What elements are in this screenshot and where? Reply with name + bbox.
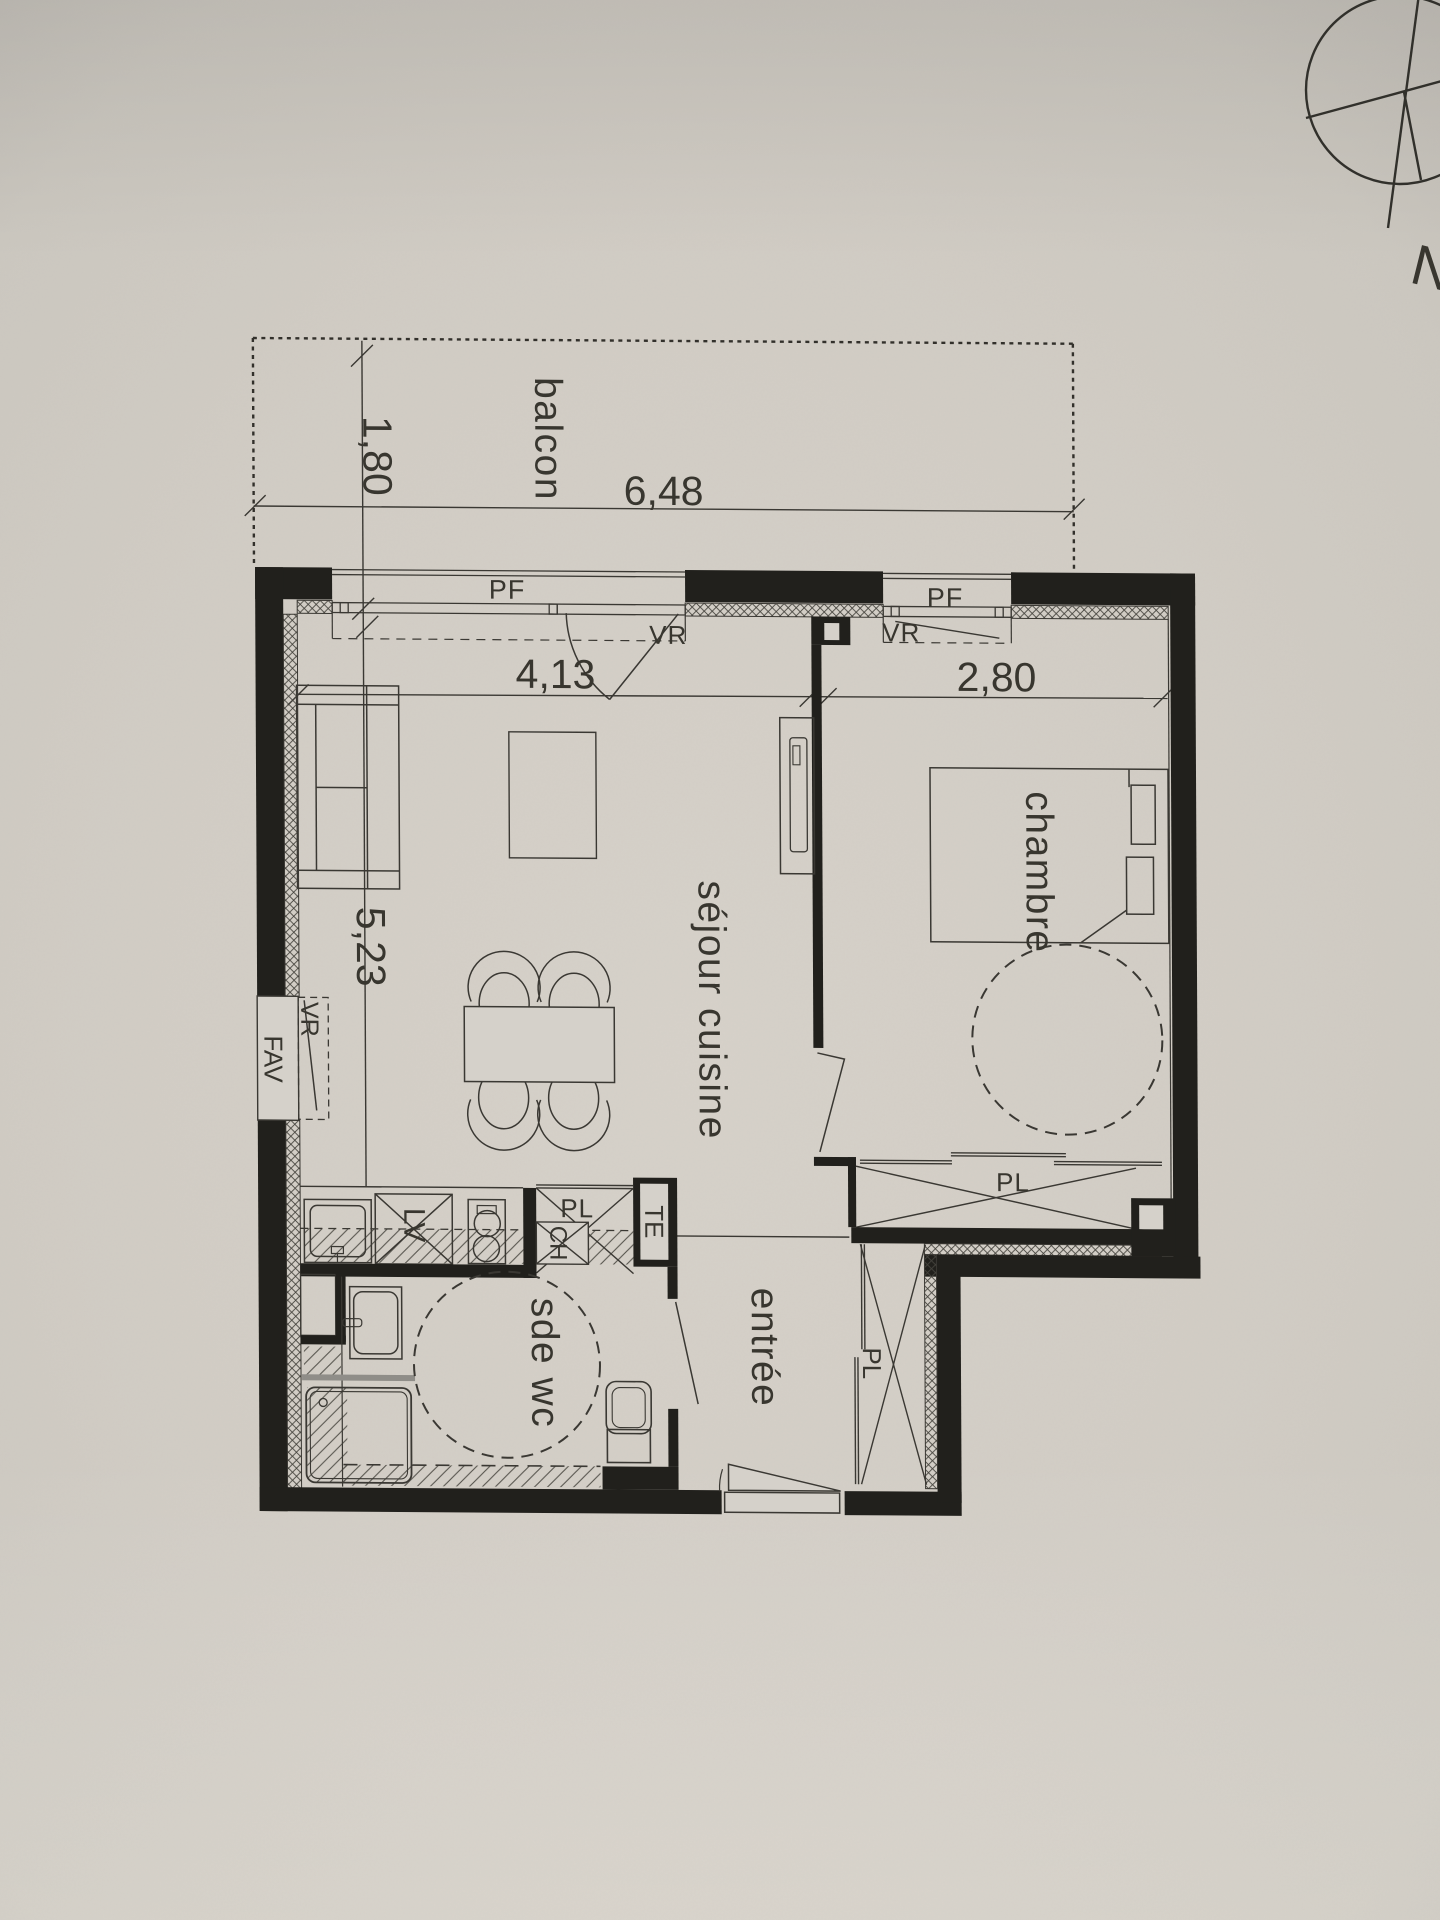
svg-text:VR: VR (295, 1002, 323, 1037)
svg-text:PL: PL (857, 1347, 887, 1379)
svg-text:VR: VR (649, 620, 687, 650)
svg-text:VR: VR (882, 617, 920, 647)
svg-text:entrée: entrée (743, 1288, 787, 1408)
svg-text:TE: TE (639, 1205, 669, 1238)
svg-text:5,23: 5,23 (348, 907, 394, 987)
svg-text:6,48: 6,48 (624, 468, 704, 515)
svg-text:4,13: 4,13 (516, 651, 596, 698)
svg-text:FAV: FAV (258, 1035, 288, 1083)
svg-text:chambre: chambre (1017, 791, 1061, 954)
svg-text:sde wc: sde wc (523, 1298, 567, 1429)
svg-text:séjour cuisine: séjour cuisine (690, 880, 734, 1140)
svg-text:PF: PF (927, 583, 964, 613)
svg-text:balcon: balcon (526, 377, 570, 501)
svg-text:2,80: 2,80 (957, 654, 1037, 701)
svg-text:CH: CH (544, 1226, 571, 1261)
svg-text:1,80: 1,80 (354, 416, 400, 496)
svg-text:PL: PL (996, 1167, 1030, 1197)
svg-text:PF: PF (489, 575, 526, 605)
svg-text:LV: LV (397, 1208, 430, 1243)
svg-text:PL: PL (560, 1193, 594, 1223)
